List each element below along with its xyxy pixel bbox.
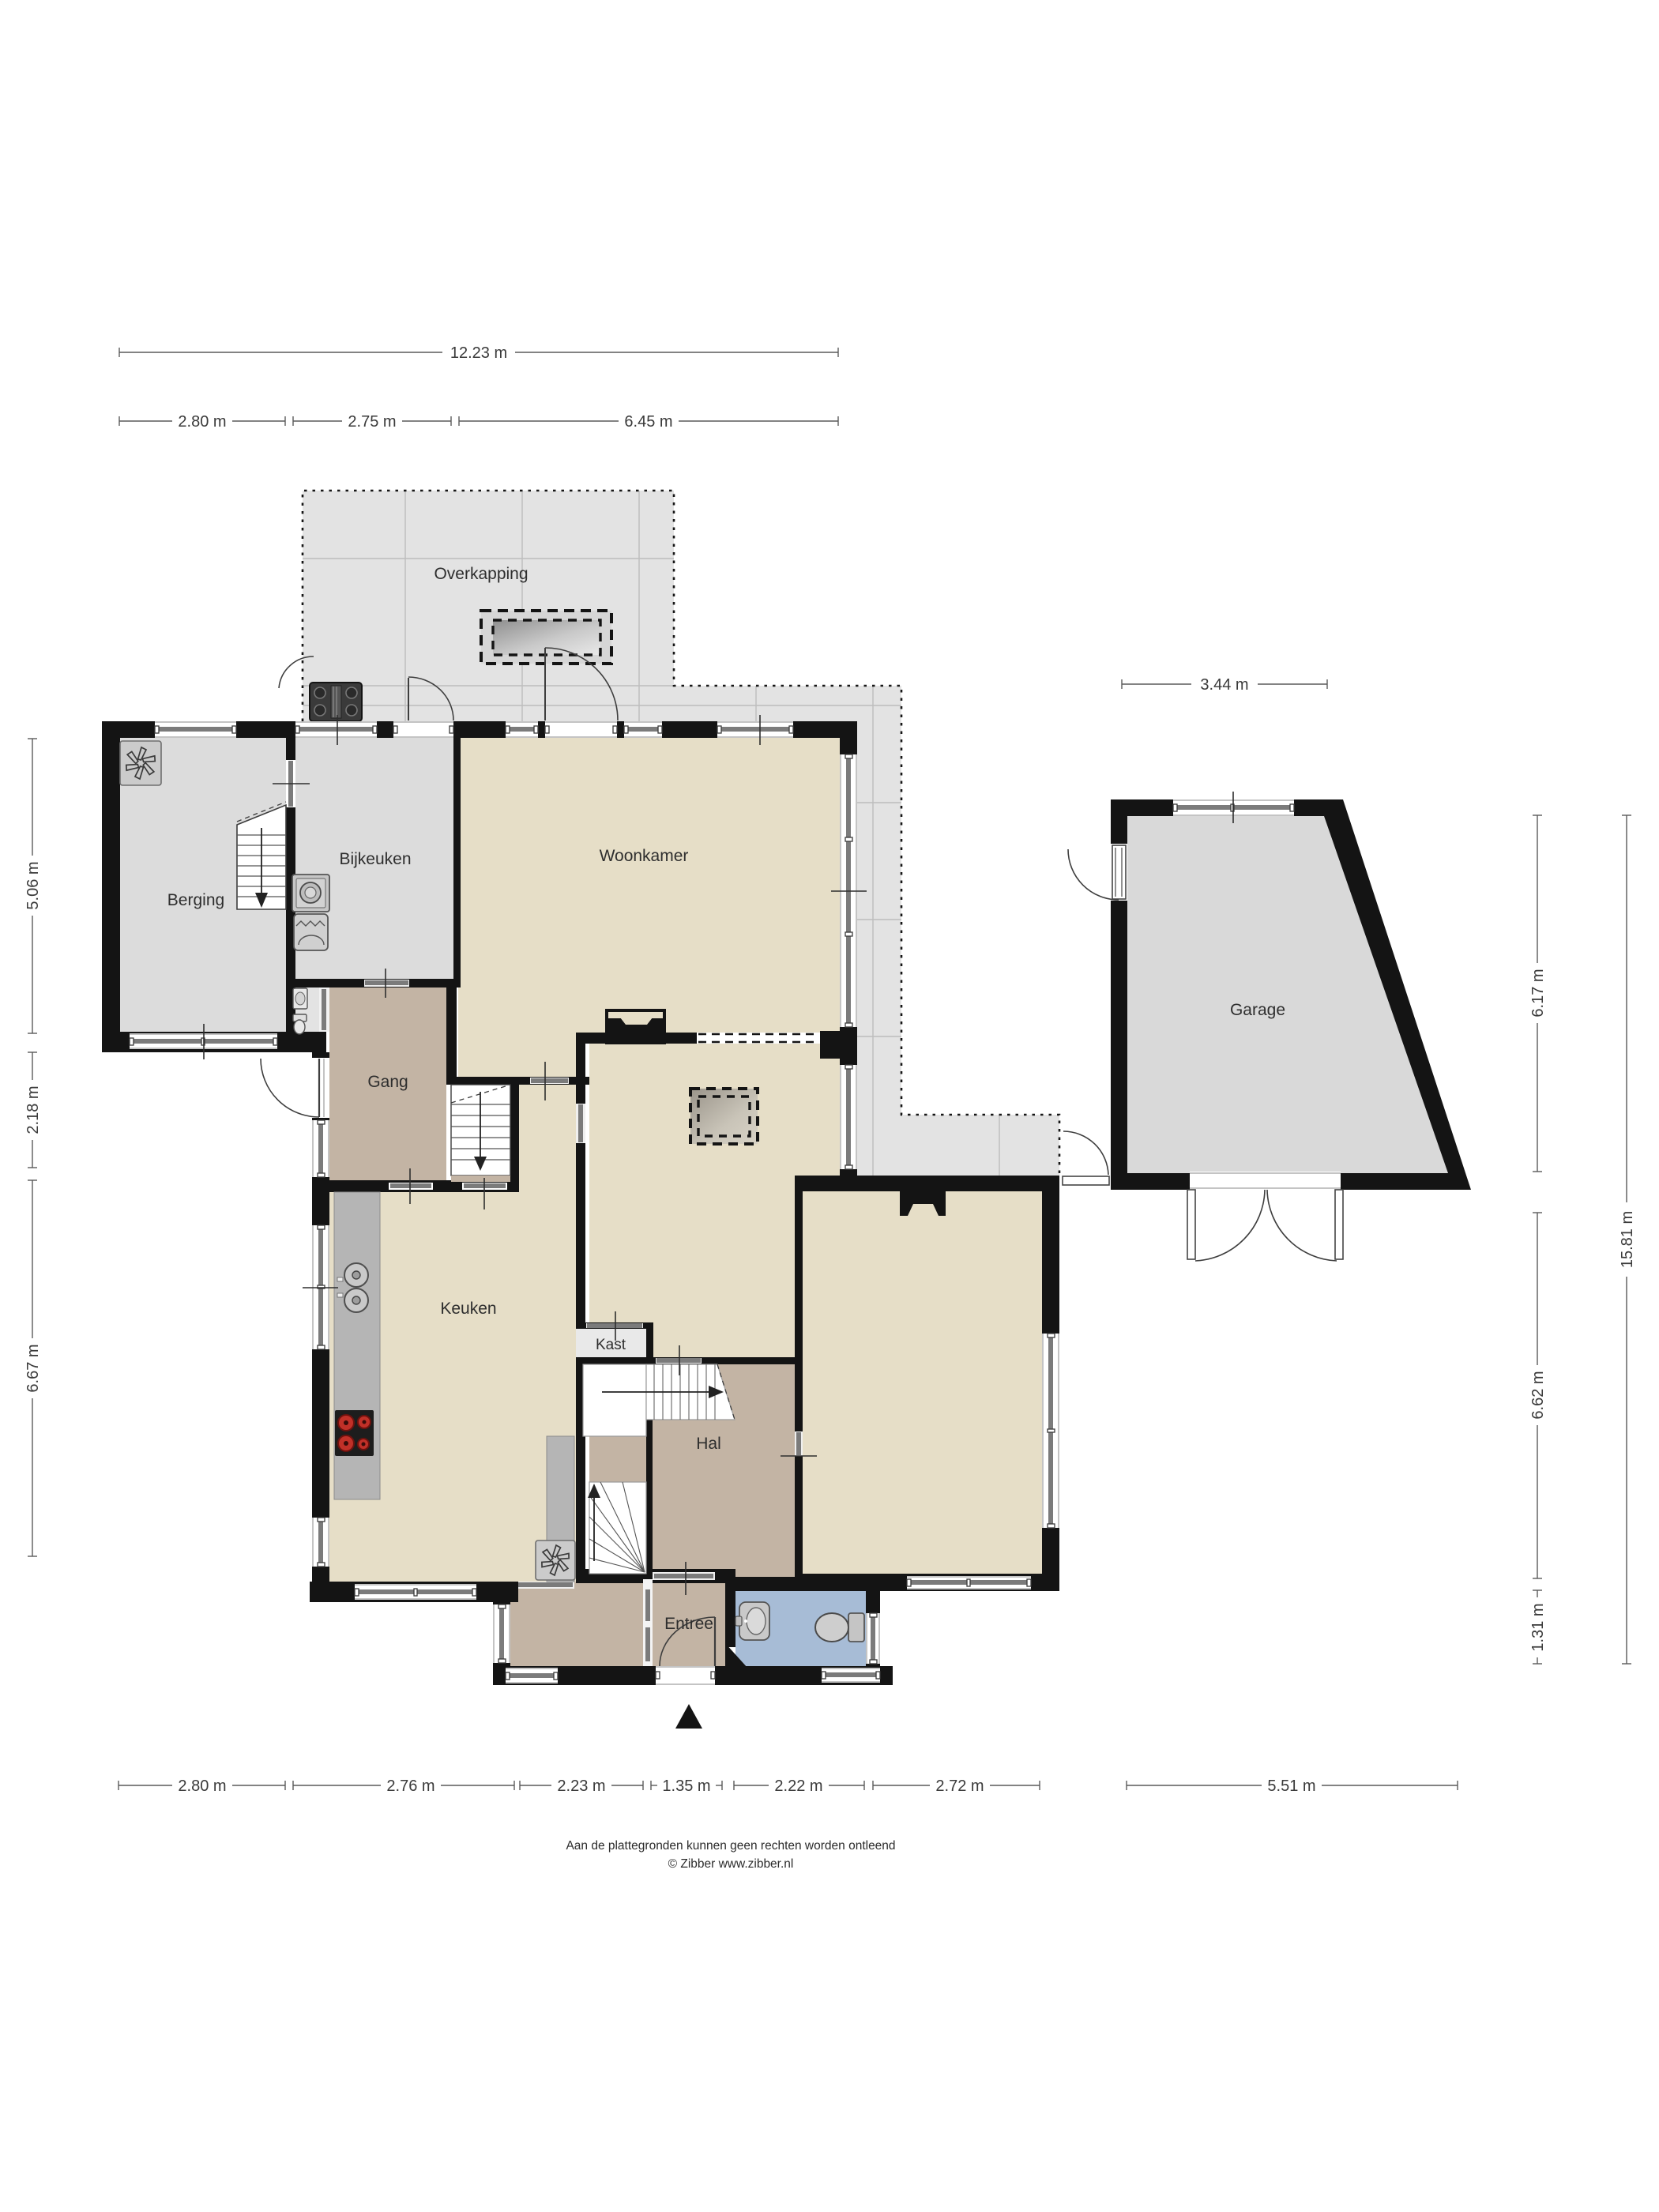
svg-text:5.06 m: 5.06 m	[24, 861, 42, 909]
svg-text:1.31 m: 1.31 m	[1529, 1603, 1547, 1651]
svg-text:3.44 m: 3.44 m	[1200, 676, 1248, 694]
svg-text:Overkapping: Overkapping	[434, 565, 528, 583]
svg-text:6.62 m: 6.62 m	[1529, 1371, 1547, 1419]
svg-text:Berging: Berging	[167, 891, 224, 909]
svg-text:Entree: Entree	[664, 1615, 713, 1633]
svg-text:Woonkamer: Woonkamer	[600, 847, 689, 865]
svg-text:Bijkeuken: Bijkeuken	[339, 850, 411, 868]
svg-text:12.23 m: 12.23 m	[450, 344, 507, 362]
svg-text:Gang: Gang	[367, 1073, 408, 1091]
svg-text:2.80 m: 2.80 m	[178, 413, 226, 431]
svg-text:2.23 m: 2.23 m	[557, 1777, 605, 1795]
svg-text:Aan de plattegronden kunnen ge: Aan de plattegronden kunnen geen rechten…	[566, 1839, 895, 1853]
svg-text:15.81 m: 15.81 m	[1619, 1211, 1636, 1268]
svg-text:2.22 m: 2.22 m	[774, 1777, 822, 1795]
svg-text:2.72 m: 2.72 m	[935, 1777, 984, 1795]
svg-text:Hal: Hal	[696, 1435, 721, 1453]
svg-text:Keuken: Keuken	[440, 1300, 496, 1318]
svg-text:6.45 m: 6.45 m	[624, 413, 672, 431]
svg-text:Garage: Garage	[1230, 1001, 1285, 1019]
svg-text:1.35 m: 1.35 m	[662, 1777, 710, 1795]
svg-text:6.67 m: 6.67 m	[24, 1344, 42, 1392]
svg-text:2.18 m: 2.18 m	[24, 1085, 42, 1134]
svg-text:2.80 m: 2.80 m	[178, 1777, 226, 1795]
svg-text:5.51 m: 5.51 m	[1267, 1777, 1315, 1795]
svg-text:6.17 m: 6.17 m	[1529, 969, 1547, 1017]
svg-text:© Zibber www.zibber.nl: © Zibber www.zibber.nl	[668, 1857, 794, 1871]
svg-text:2.76 m: 2.76 m	[386, 1777, 434, 1795]
svg-text:Kast: Kast	[596, 1337, 626, 1353]
svg-text:2.75 m: 2.75 m	[348, 413, 396, 431]
